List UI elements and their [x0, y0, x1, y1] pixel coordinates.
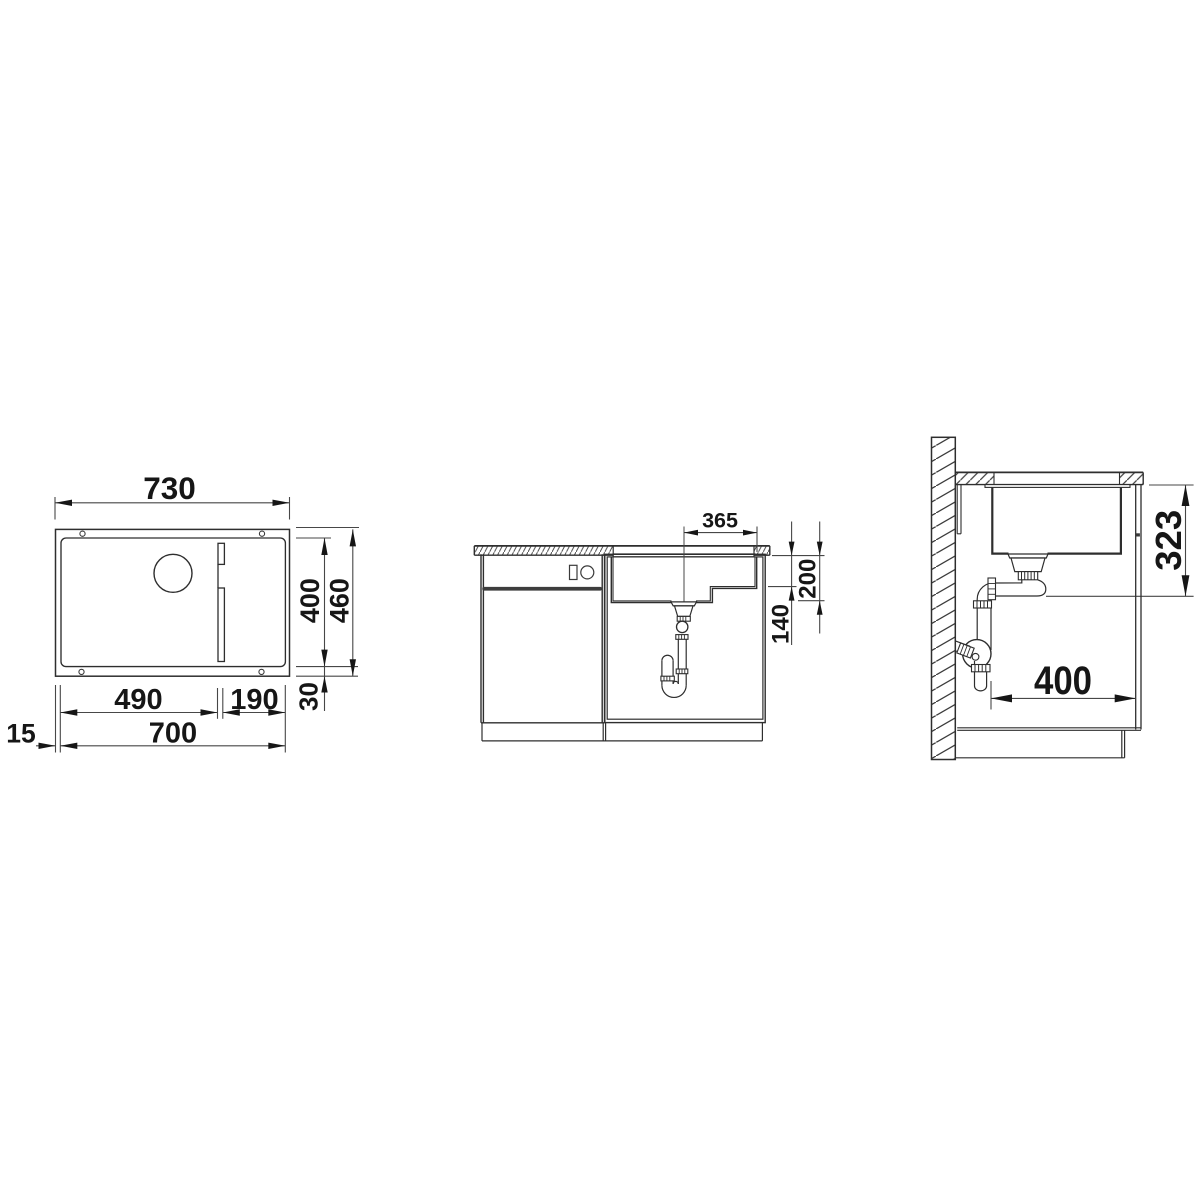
svg-text:15: 15 [6, 719, 35, 749]
svg-text:365: 365 [702, 508, 738, 532]
svg-text:30: 30 [294, 682, 324, 711]
svg-text:140: 140 [768, 604, 795, 644]
svg-text:700: 700 [149, 718, 197, 750]
svg-text:730: 730 [143, 470, 196, 506]
svg-text:490: 490 [114, 684, 162, 716]
svg-text:400: 400 [1034, 659, 1092, 703]
svg-text:200: 200 [795, 559, 822, 599]
svg-text:323: 323 [1148, 510, 1189, 571]
svg-text:190: 190 [230, 684, 278, 716]
svg-text:460: 460 [325, 578, 355, 623]
svg-text:400: 400 [295, 578, 325, 623]
